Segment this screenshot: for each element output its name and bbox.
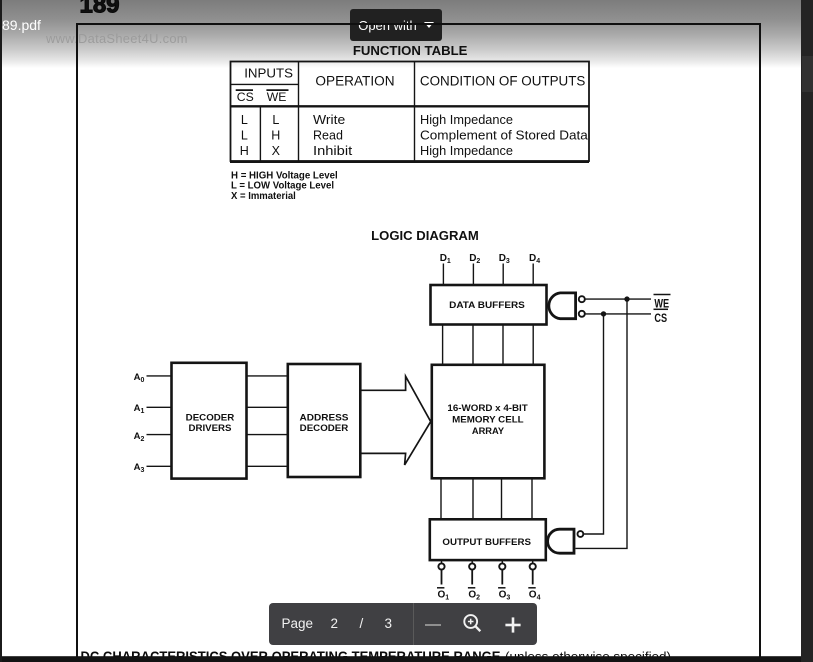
svg-text:189: 189 (80, 0, 120, 19)
